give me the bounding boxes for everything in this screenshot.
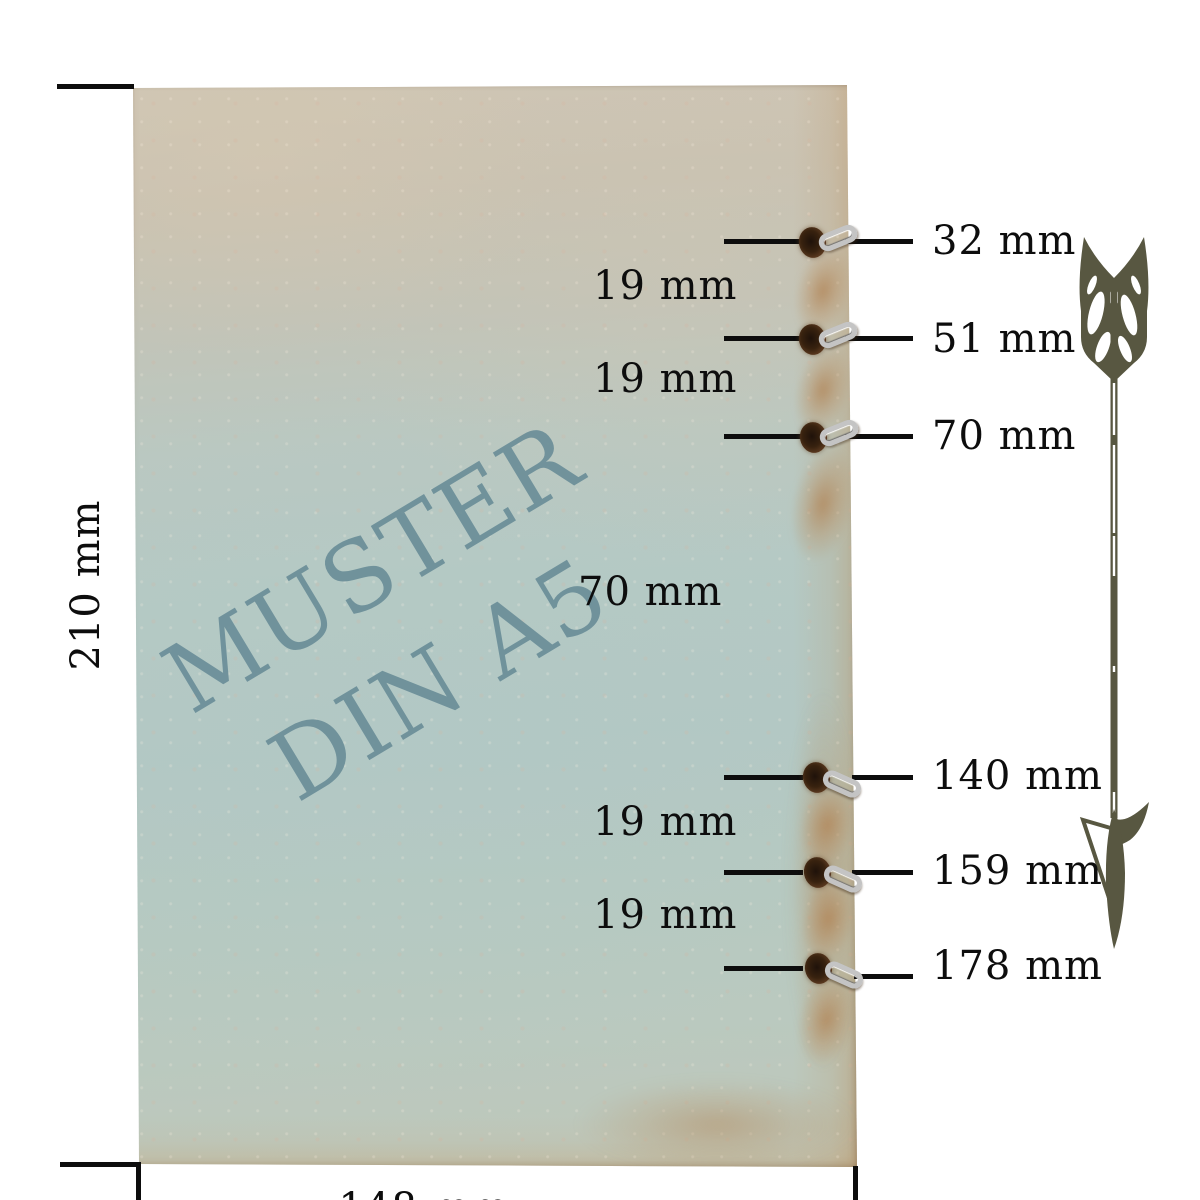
- gap-label-1: 19 mm: [593, 262, 737, 310]
- top-left-tick: [57, 84, 134, 89]
- leader-line-left: [724, 870, 803, 875]
- edge-stain: [780, 439, 866, 569]
- bottom-left-tick-vertical: [136, 1162, 141, 1200]
- product-dimension-diagram: MUSTER DIN A5 210 mm 148 mm 32 mm 51 mm …: [0, 0, 1200, 1200]
- page-width-label: 148 mm: [334, 1184, 514, 1200]
- leader-line-left: [724, 239, 803, 244]
- corner-stain: [575, 1078, 860, 1170]
- leader-line-right: [852, 870, 913, 875]
- gap-label-5: 19 mm: [593, 891, 737, 939]
- hole-position-label-3: 70 mm: [932, 412, 1076, 460]
- hole-position-label-4: 140 mm: [932, 752, 1103, 800]
- gap-label-2: 19 mm: [593, 355, 737, 403]
- gap-label-3: 70 mm: [578, 568, 722, 616]
- leader-line-left: [724, 336, 803, 341]
- page-height-label: 210 mm: [62, 497, 110, 673]
- bottom-left-tick-horizontal: [60, 1162, 138, 1167]
- gap-label-4: 19 mm: [593, 798, 737, 846]
- notebook-cover-paper: MUSTER DIN A5: [133, 85, 857, 1167]
- hole-position-label-5: 159 mm: [932, 847, 1103, 895]
- leader-line-left: [724, 966, 803, 971]
- leader-line-left: [724, 775, 803, 780]
- hole-position-label-6: 178 mm: [932, 942, 1103, 990]
- hole-position-label-1: 32 mm: [932, 217, 1076, 265]
- hole-position-label-2: 51 mm: [932, 315, 1076, 363]
- bottom-right-tick-vertical: [853, 1166, 858, 1200]
- leader-line-left: [724, 434, 803, 439]
- leader-line-right: [852, 775, 913, 780]
